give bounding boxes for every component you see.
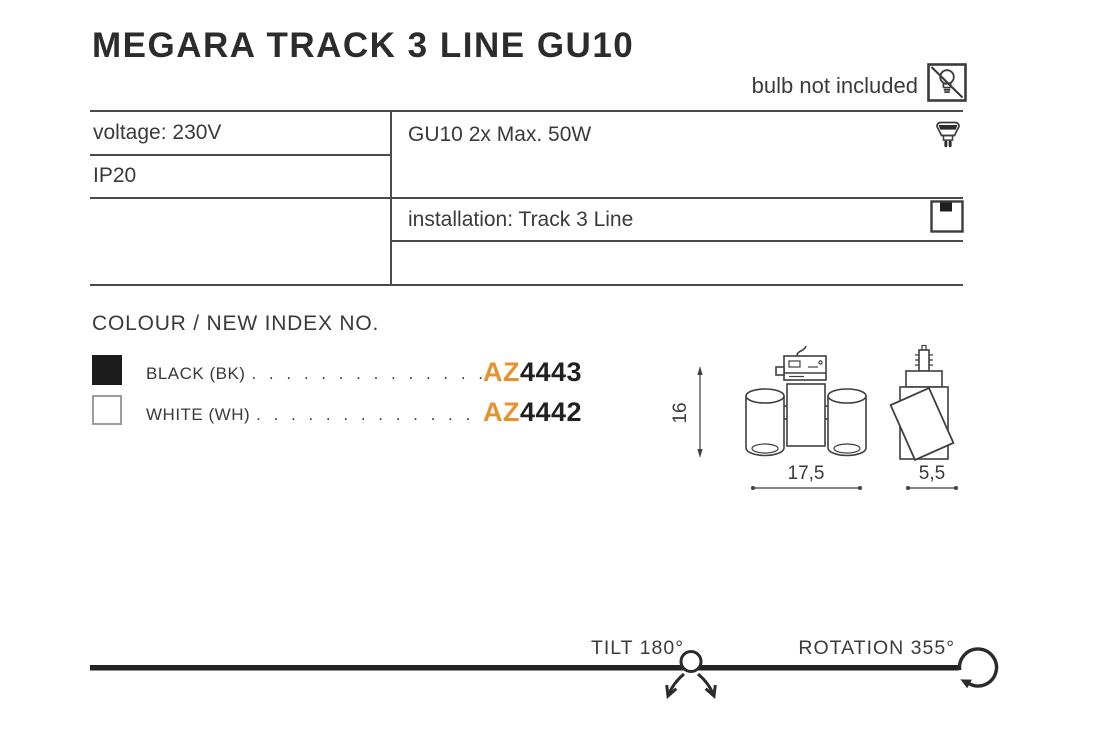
spec-lamp: GU10 2x Max. 50W	[408, 123, 591, 147]
spec-installation: installation: Track 3 Line	[408, 208, 633, 232]
table-border-top	[90, 110, 963, 112]
colour-option-white: WHITE (WH). . . . . . . . . . . . . .	[146, 405, 492, 425]
index-code-white: AZ4442	[483, 397, 582, 428]
code-number: 4443	[520, 357, 582, 387]
leader-dots: . . . . . . . . . . . . . .	[251, 364, 487, 383]
code-prefix: AZ	[483, 357, 520, 387]
colour-option-black: BLACK (BK). . . . . . . . . . . . . .	[146, 364, 487, 384]
dim-height-label: 16	[670, 402, 691, 423]
tilt-pivot-icon	[681, 652, 701, 672]
bulb-not-included-note: bulb not included	[752, 73, 918, 99]
swatch-white	[92, 395, 122, 425]
colour-section-heading: COLOUR / NEW INDEX NO.	[92, 312, 379, 336]
code-number: 4442	[520, 397, 582, 427]
gu10-bulb-icon	[935, 120, 961, 154]
tilt-rotation-diagram: TILT 180° ROTATION 355°	[86, 628, 1006, 718]
colour-label: BLACK (BK)	[146, 364, 245, 383]
table-border-bottom	[90, 284, 963, 286]
dim-depth-label: 5,5	[919, 463, 945, 484]
no-bulb-icon	[927, 63, 967, 103]
table-column-divider	[390, 110, 392, 286]
table-line-installation-bottom	[390, 240, 963, 242]
colour-label: WHITE (WH)	[146, 405, 250, 424]
technical-drawing: 16 17,5 5,5	[670, 340, 980, 505]
index-code-black: AZ4443	[483, 357, 582, 388]
rotation-label: ROTATION 355°	[798, 637, 955, 659]
dim-width-label: 17,5	[788, 463, 825, 484]
spec-ip-rating: IP20	[93, 164, 136, 188]
tilt-arrows-icon	[667, 674, 716, 696]
tilt-label: TILT 180°	[591, 637, 684, 659]
leader-dots: . . . . . . . . . . . . . .	[256, 405, 492, 424]
track-mount-icon	[930, 200, 964, 233]
table-line-middle	[90, 197, 963, 199]
page-title: MEGARA TRACK 3 LINE GU10	[92, 26, 634, 66]
table-line-voltage-bottom	[90, 154, 390, 156]
swatch-black	[92, 355, 122, 385]
rotation-arrow-icon	[960, 649, 997, 688]
track-line	[90, 665, 958, 671]
code-prefix: AZ	[483, 397, 520, 427]
spec-voltage: voltage: 230V	[93, 121, 221, 145]
